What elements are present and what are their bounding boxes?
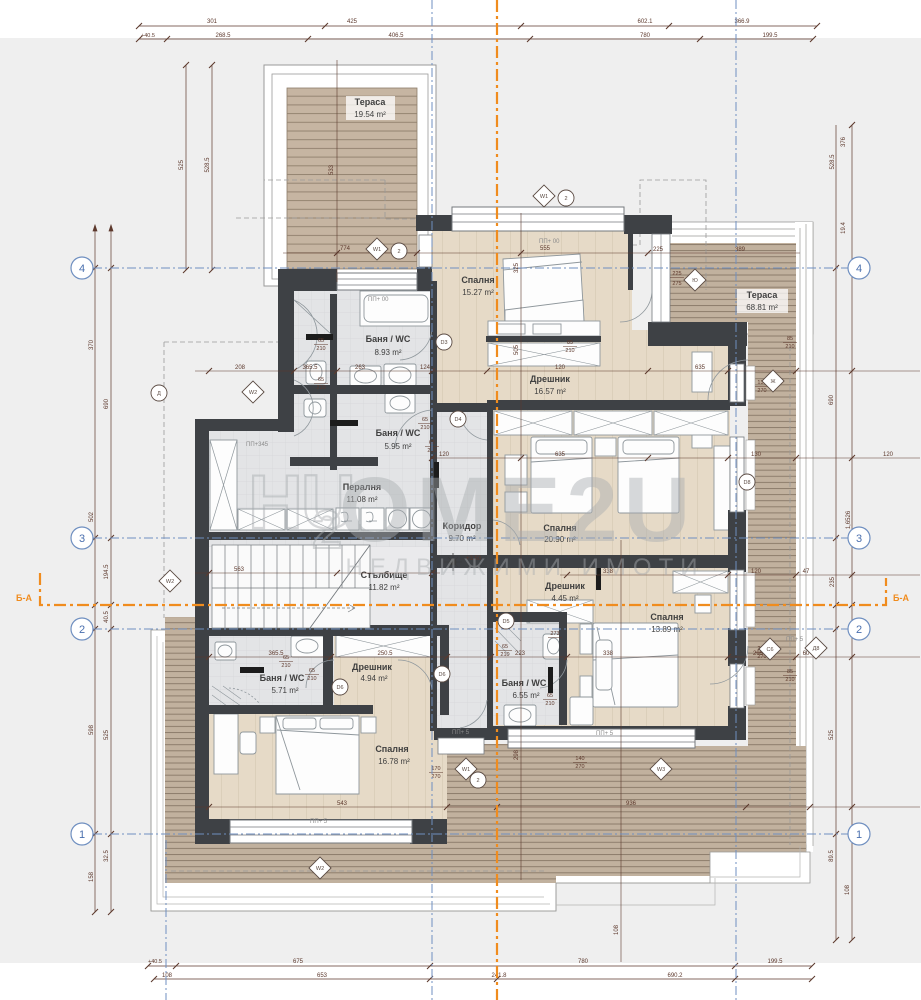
svg-text:543: 543 [337,801,348,807]
svg-text:505: 505 [514,344,520,355]
svg-text:85: 85 [787,669,793,675]
svg-text:4: 4 [79,263,85,275]
svg-text:ПП+ 5: ПП+ 5 [452,730,470,736]
svg-text:525: 525 [179,159,185,170]
svg-text:4.94 m²: 4.94 m² [360,674,387,683]
svg-text:338: 338 [603,651,614,657]
svg-text:774: 774 [340,246,351,252]
svg-text:2: 2 [856,624,862,636]
svg-text:D6: D6 [438,672,445,678]
svg-text:108: 108 [845,884,851,895]
svg-text:235: 235 [830,576,836,587]
svg-text:Ю: Ю [692,278,698,284]
svg-text:ПП+ 00: ПП+ 00 [539,239,560,245]
svg-text:210: 210 [500,652,509,658]
svg-text:2: 2 [476,778,479,784]
svg-text:563: 563 [234,567,245,573]
svg-text:W1: W1 [462,767,470,773]
svg-text:11.82 m²: 11.82 m² [369,583,400,592]
svg-text:3: 3 [856,533,862,545]
svg-text:С6: С6 [766,647,773,653]
svg-text:124: 124 [420,365,431,371]
svg-text:Тераса: Тераса [355,97,387,107]
svg-text:OME2U: OME2U [339,459,696,561]
svg-text:598: 598 [89,724,95,735]
svg-text:263: 263 [355,365,366,371]
svg-text:5.95 m²: 5.95 m² [384,442,411,451]
svg-text:780: 780 [578,959,589,965]
svg-text:199.5: 199.5 [767,959,783,965]
svg-text:4: 4 [856,263,862,275]
svg-text:65: 65 [309,668,315,674]
svg-text:120: 120 [883,452,894,458]
svg-text:32.5: 32.5 [104,850,110,862]
svg-text:2: 2 [564,196,567,202]
svg-text:65: 65 [318,377,324,383]
svg-text:1: 1 [79,829,85,841]
svg-text:W2: W2 [166,579,174,585]
svg-text:W2: W2 [249,390,257,396]
svg-text:1,6526: 1,6526 [846,510,852,529]
svg-text:+40.5: +40.5 [148,959,162,965]
svg-text:250.5: 250.5 [377,651,393,657]
svg-text:936: 936 [626,801,637,807]
svg-text:ПП+ 5: ПП+ 5 [310,819,328,825]
svg-text:199.5: 199.5 [762,33,778,39]
svg-text:5.71 m²: 5.71 m² [271,686,298,695]
svg-text:W1: W1 [373,247,381,253]
svg-text:210: 210 [281,663,290,669]
svg-text:241.8: 241.8 [491,973,507,979]
svg-text:W2: W2 [316,866,324,872]
svg-text:Д: Д [157,391,161,397]
svg-text:4.45 m²: 4.45 m² [551,594,578,603]
svg-text:140: 140 [575,756,584,762]
svg-text:47: 47 [803,569,810,575]
svg-text:65: 65 [502,644,508,650]
svg-text:D8: D8 [743,480,750,486]
svg-text:Спалня: Спалня [375,744,408,754]
svg-text:Д8: Д8 [813,646,820,652]
svg-text:210: 210 [307,676,316,682]
svg-text:365.5: 365.5 [302,365,318,371]
svg-text:528.5: 528.5 [205,157,211,173]
svg-text:270: 270 [757,388,766,394]
svg-text:Б-А: Б-А [16,593,32,603]
svg-text:Б-А: Б-А [893,593,909,603]
svg-text:8.93 m²: 8.93 m² [374,348,401,357]
svg-text:675: 675 [293,959,304,965]
svg-text:ПП+ 5: ПП+ 5 [786,637,804,643]
svg-text:525: 525 [829,729,835,740]
svg-text:158: 158 [89,871,95,882]
svg-text:690: 690 [829,394,835,405]
svg-text:D6: D6 [336,685,343,691]
svg-text:НЕДВИЖИМИ ИМОТИ: НЕДВИЖИМИ ИМОТИ [346,554,705,581]
svg-text:528.5: 528.5 [830,154,836,170]
svg-text:210: 210 [785,677,794,683]
svg-text:223: 223 [515,651,526,657]
svg-text:389: 389 [735,247,746,253]
svg-text:85: 85 [787,336,793,342]
svg-text:210: 210 [565,348,574,354]
svg-text:ПП+ 5: ПП+ 5 [596,731,614,737]
svg-text:65: 65 [318,338,324,344]
svg-text:89.5: 89.5 [829,850,835,862]
svg-text:690: 690 [104,398,110,409]
svg-text:15.27 m²: 15.27 m² [462,288,494,297]
svg-text:Спалня: Спалня [650,612,683,622]
svg-text:225: 225 [672,271,681,277]
svg-text:3: 3 [79,533,85,545]
svg-text:65: 65 [283,655,289,661]
svg-text:85: 85 [567,340,573,346]
svg-text:Баня / WC: Баня / WC [376,428,421,438]
svg-text:210: 210 [316,346,325,352]
svg-text:D3: D3 [440,340,447,346]
svg-text:270: 270 [431,774,440,780]
svg-text:270: 270 [575,764,584,770]
svg-text:130: 130 [751,452,762,458]
svg-text:Дрешник: Дрешник [530,374,570,384]
svg-text:Дрешник: Дрешник [352,662,392,672]
svg-text:120: 120 [555,365,566,371]
svg-text:19.4: 19.4 [841,222,847,234]
svg-text:301: 301 [207,19,218,25]
svg-text:16.78 m²: 16.78 m² [378,757,410,766]
svg-text:Баня / WC: Баня / WC [366,334,411,344]
svg-text:Тераса: Тераса [747,290,779,300]
svg-text:Баня / WC: Баня / WC [260,673,305,683]
svg-text:210: 210 [545,701,554,707]
svg-text:365.5: 365.5 [268,651,284,657]
svg-text:68.81 m²: 68.81 m² [746,303,778,312]
svg-text:635: 635 [555,452,566,458]
svg-text:273: 273 [550,631,559,637]
svg-text:1: 1 [856,829,862,841]
svg-text:653: 653 [317,973,328,979]
svg-text:65: 65 [547,693,553,699]
svg-text:225: 225 [653,247,664,253]
svg-text:690.2: 690.2 [667,973,683,979]
svg-text:120: 120 [751,569,762,575]
svg-text:210: 210 [316,385,325,391]
svg-text:370: 370 [89,339,95,350]
svg-text:Баня / WC: Баня / WC [502,678,547,688]
svg-text:298: 298 [514,749,520,760]
svg-text:40.5: 40.5 [104,611,110,623]
svg-text:19.54 m²: 19.54 m² [354,110,386,119]
svg-text:Дрешник: Дрешник [545,581,585,591]
svg-text:525: 525 [104,729,110,740]
svg-text:108: 108 [614,924,620,935]
svg-text:16.57 m²: 16.57 m² [534,387,566,396]
svg-text:555: 555 [540,246,551,252]
svg-text:ПП+345: ПП+345 [246,442,269,448]
svg-text:268.5: 268.5 [215,33,231,39]
svg-text:+40.5: +40.5 [141,33,155,39]
svg-text:D5: D5 [502,619,509,625]
svg-text:502: 502 [89,511,95,522]
svg-text:Ж: Ж [770,379,775,385]
svg-text:D4: D4 [454,417,461,423]
svg-text:120: 120 [439,452,450,458]
svg-text:6.55 m²: 6.55 m² [512,691,539,700]
svg-text:ПП+ 00: ПП+ 00 [368,297,389,303]
svg-text:425: 425 [347,19,358,25]
svg-text:406.5: 406.5 [388,33,404,39]
svg-text:376: 376 [841,136,847,147]
svg-text:780: 780 [640,33,651,39]
svg-text:275: 275 [672,281,681,287]
svg-text:366.9: 366.9 [734,19,750,25]
svg-text:210: 210 [420,425,429,431]
svg-text:635: 635 [695,365,706,371]
svg-text:65: 65 [422,417,428,423]
svg-text:210: 210 [785,344,794,350]
svg-text:108: 108 [162,973,173,979]
svg-text:194.5: 194.5 [104,564,110,580]
svg-text:2: 2 [397,249,400,255]
svg-text:208: 208 [235,365,246,371]
svg-text:W3: W3 [657,767,665,773]
svg-text:602.1: 602.1 [637,19,653,25]
svg-text:2: 2 [79,624,85,636]
svg-text:170: 170 [431,766,440,772]
svg-text:W1: W1 [540,194,548,200]
svg-text:Спалня: Спалня [461,275,494,285]
svg-text:2: 2 [312,500,342,560]
svg-text:533: 533 [329,164,335,175]
